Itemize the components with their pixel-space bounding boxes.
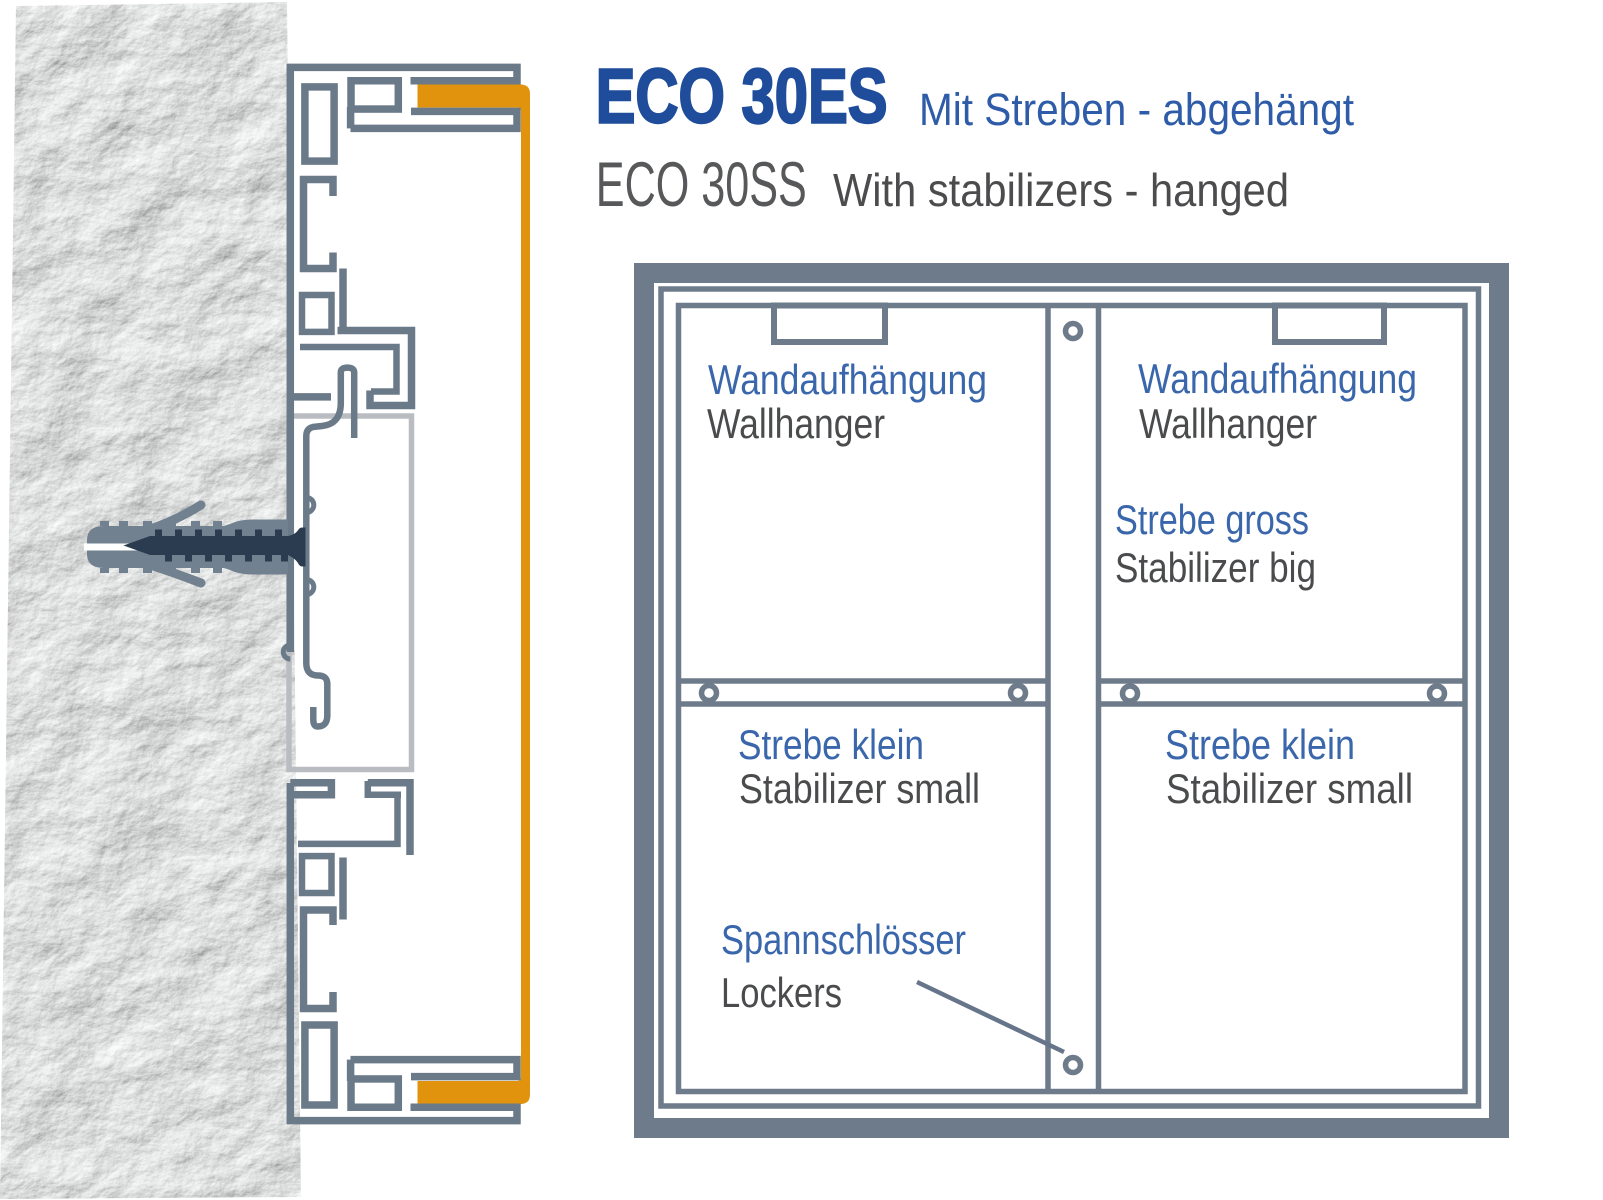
svg-text:Wandaufhängung: Wandaufhängung bbox=[1138, 355, 1417, 402]
svg-text:Stabilizer big: Stabilizer big bbox=[1115, 544, 1316, 591]
svg-text:Wallhanger: Wallhanger bbox=[1139, 400, 1317, 447]
svg-text:With stabilizers - hanged: With stabilizers - hanged bbox=[833, 164, 1289, 216]
svg-text:Strebe klein: Strebe klein bbox=[738, 721, 924, 768]
svg-text:Wandaufhängung: Wandaufhängung bbox=[708, 356, 987, 403]
svg-text:Strebe gross: Strebe gross bbox=[1115, 496, 1309, 543]
svg-text:Strebe klein: Strebe klein bbox=[1165, 721, 1355, 768]
svg-text:Lockers: Lockers bbox=[721, 969, 842, 1016]
svg-text:ECO 30ES: ECO 30ES bbox=[596, 53, 888, 139]
svg-text:Mit Streben - abgehängt: Mit Streben - abgehängt bbox=[919, 84, 1354, 135]
svg-text:Spannschlösser: Spannschlösser bbox=[721, 916, 966, 963]
svg-text:ECO 30SS: ECO 30SS bbox=[596, 150, 807, 220]
svg-text:Stabilizer small: Stabilizer small bbox=[1166, 765, 1413, 812]
svg-text:Wallhanger: Wallhanger bbox=[707, 400, 885, 447]
svg-text:Stabilizer small: Stabilizer small bbox=[739, 765, 980, 812]
